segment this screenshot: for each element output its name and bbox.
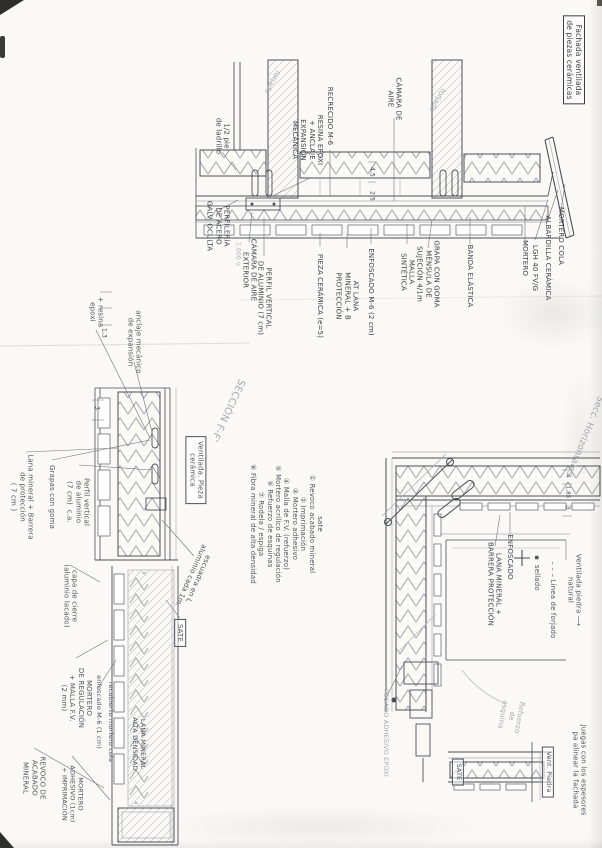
annotation-label: CÁMARA DE AIRE xyxy=(386,77,403,120)
label-box: SATE xyxy=(452,759,464,786)
annotation-label: PERFILERÍA DE ACERO GALV. OCULTA xyxy=(205,201,230,251)
annotation-label: LANA MINERAL + BARRERA PROTECCIÓN xyxy=(486,542,503,626)
label-box: Vent. Piedra xyxy=(542,747,554,798)
annotation-label: Perfil vertical de aluminio (7 cm) c.a. xyxy=(65,478,90,526)
annotation-label: 3 xyxy=(564,506,571,510)
annotation-label: LANA MINERAL ALTA DENSIDAD xyxy=(130,717,146,770)
annotation-label: PIEZA CERÁMICA (e=5) xyxy=(316,254,324,338)
pencil-leader xyxy=(462,670,506,704)
annotation-label: AT LANA MINERAL + B PROTECCIÓN xyxy=(334,272,359,320)
annotation-label: capa de cierre (aluminio lacado) xyxy=(62,564,79,627)
label-box: SATE xyxy=(174,619,186,647)
annotation-label: RESINA EPOXI + ANCLAJE EXPANSIÓN MECÁNIC… xyxy=(290,115,324,165)
annotation-label: BANDA ELÁSTICA xyxy=(466,245,474,308)
annotation-label: ENFOSCADO M-6 (2 cm) xyxy=(367,248,375,336)
annotation-label: PERFIL VERTICAL DE ALUMINIO (7 cm) xyxy=(256,261,273,335)
annotation-label: MALLA SINTÉTICA xyxy=(399,253,416,291)
annotation-label: PEGADO ADHESIVO EPOXI xyxy=(381,689,389,777)
annotation-label: Juegas con los espesores pa alinear la f… xyxy=(571,724,588,815)
annotation-label: recubierto mortero cola xyxy=(106,682,114,762)
annotation-label: LGH 40 FV/G xyxy=(531,245,539,291)
left-section-drawing xyxy=(95,388,178,845)
corner-plan-drawing xyxy=(382,452,600,802)
annotation-label: ENFOSCADO xyxy=(506,534,514,580)
annotation-label: 4,5 xyxy=(368,167,375,177)
annotation-label: MORTERO ADHESIVO (1cm) + IMPRIMACIÓN xyxy=(60,765,83,822)
annotation-label: ALBARDILLA CERÁMICA xyxy=(544,216,552,301)
sheet-title-box: Fachada ventilada de piezas cerámicas xyxy=(563,15,585,104)
annotation-label: 1,3 xyxy=(100,328,107,338)
annotation-label: MORTERO xyxy=(521,240,529,276)
annotation-label: 3 xyxy=(93,406,100,410)
annotation-label: – – – Línea de forjado xyxy=(549,561,557,638)
annotation-label: MORTERO DE REGULACIÓN + MALLA F.V. (2 mm… xyxy=(59,668,93,728)
sate-layers-list: sate ① Revoco acabado mineral ② Imprimac… xyxy=(248,464,324,584)
annotation-label: anclaje mecánico de expansión xyxy=(126,310,143,373)
page-edge-shadow xyxy=(0,839,602,848)
annotation-label: Ventilada piedra ⟶ natural xyxy=(566,554,583,626)
annotation-label: REVOCO DE ACABADO MINERAL xyxy=(21,756,46,799)
scanned-drawing-sheet: Fachada ventilada de piezas cerámicas 1/… xyxy=(0,0,602,848)
annotation-label: RECRECIDO M-6 xyxy=(326,87,334,146)
annotation-label: ▪ sellado xyxy=(533,555,541,591)
annotation-label: GRAPA CON GOMA MÉNSULA DE SUJECIÓN 4/1m xyxy=(415,240,440,307)
annotation-label: Grapas con goma xyxy=(48,465,56,529)
annotation-label: + resina epoxi xyxy=(88,297,105,328)
annotation-label: MORTERO COLA xyxy=(557,207,565,265)
annotation-label: 1,85 xyxy=(564,486,571,499)
page-edge-shadow xyxy=(588,0,602,848)
annotation-label: 2,5 xyxy=(368,191,375,201)
annotation-label: Lana mineral + Barrera de protección ( 7… xyxy=(9,454,34,539)
annotation-label: 4 xyxy=(564,474,571,478)
label-box: Ventilada. Pieza cerámica xyxy=(186,436,207,504)
annotation-label: 1/2 pie de ladrillo xyxy=(214,118,231,154)
annotation-label: enfoscado M-6 (1 cm) xyxy=(94,675,102,749)
